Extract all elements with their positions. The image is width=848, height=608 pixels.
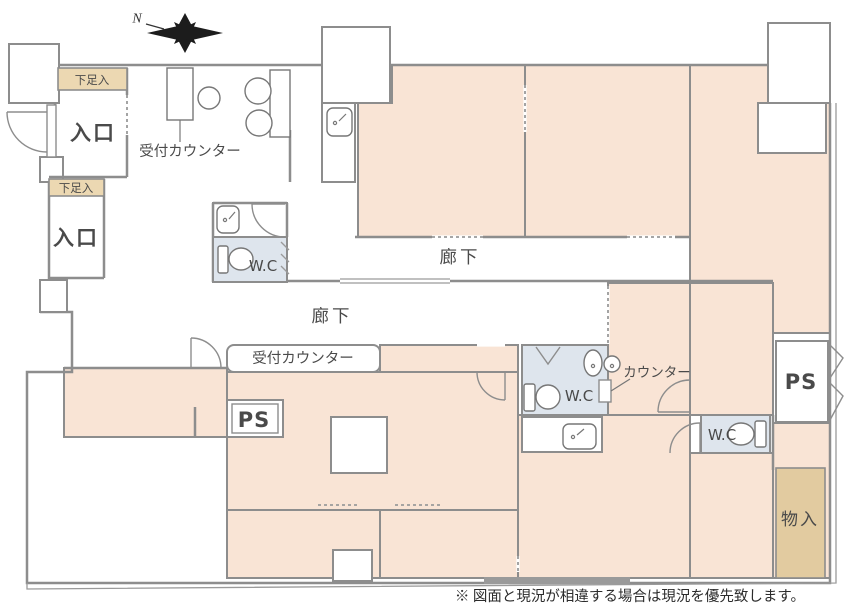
room-top-middle — [525, 65, 690, 237]
room-bottom-right-b — [690, 453, 773, 578]
reception-counter-upper-2 — [270, 70, 290, 137]
storage-label: 物入 — [781, 510, 819, 530]
toilet-icon-wc2 — [524, 384, 560, 411]
entrance-label-2: 入口 — [53, 226, 99, 250]
shaft-box-top-right — [768, 23, 830, 103]
shoe-label-2: 下足入 — [59, 181, 94, 195]
left-small-box — [40, 280, 67, 312]
reception-label-2: 受付カウンター — [252, 350, 354, 367]
wc-label-3: W.C — [708, 426, 736, 444]
shaft-box-top — [322, 27, 390, 103]
room-mid-right — [690, 283, 773, 415]
room-counter — [608, 283, 690, 415]
entrance-label-1: 入口 — [70, 121, 116, 145]
compass-north-label: N — [131, 12, 142, 27]
balcony-box-top-left — [9, 44, 59, 103]
disclaimer-note: ※ 図面と現況が相違する場合は現況を優先致します。 — [455, 588, 805, 605]
corridor-label-1: 廊下 — [440, 248, 481, 268]
compass-icon: N — [131, 12, 223, 54]
bottom-door-bar — [484, 577, 630, 584]
room-bottom-middle — [380, 510, 518, 578]
rooms — [64, 65, 830, 578]
corridor-west-door-arc — [191, 338, 221, 368]
floorplan-canvas: N 下足入 入口 下足入 入口 受付カウンター 廊下 廊下 W.C 受付カウンタ… — [0, 0, 848, 608]
entrance-door-arc — [7, 112, 47, 152]
sink-icon-bottom — [563, 424, 596, 449]
counter-label: カウンター — [623, 365, 691, 381]
notch-top-right — [758, 103, 826, 153]
reception-counter-upper-1 — [167, 68, 193, 120]
wc-label-2: W.C — [565, 387, 593, 405]
ps-label-2: PS — [785, 370, 818, 394]
notch-bottom — [333, 550, 372, 581]
room-left-strip — [64, 368, 227, 437]
stool-1 — [198, 87, 220, 109]
room-center-ext — [380, 345, 518, 375]
reception-label-1: 受付カウンター — [139, 143, 241, 160]
notch-center — [331, 417, 387, 473]
stool-2 — [245, 78, 271, 104]
sink-icon-entry-nook — [217, 206, 239, 233]
counter-small — [599, 380, 611, 402]
wc-label-1: W.C — [249, 257, 277, 275]
ps-label-1: PS — [238, 408, 271, 432]
sink-icon-kitchen — [327, 108, 352, 136]
corridor-label-2: 廊下 — [312, 307, 353, 327]
entry-door-frame — [47, 105, 56, 157]
stool-3 — [246, 110, 272, 136]
shoe-label-1: 下足入 — [75, 73, 110, 87]
